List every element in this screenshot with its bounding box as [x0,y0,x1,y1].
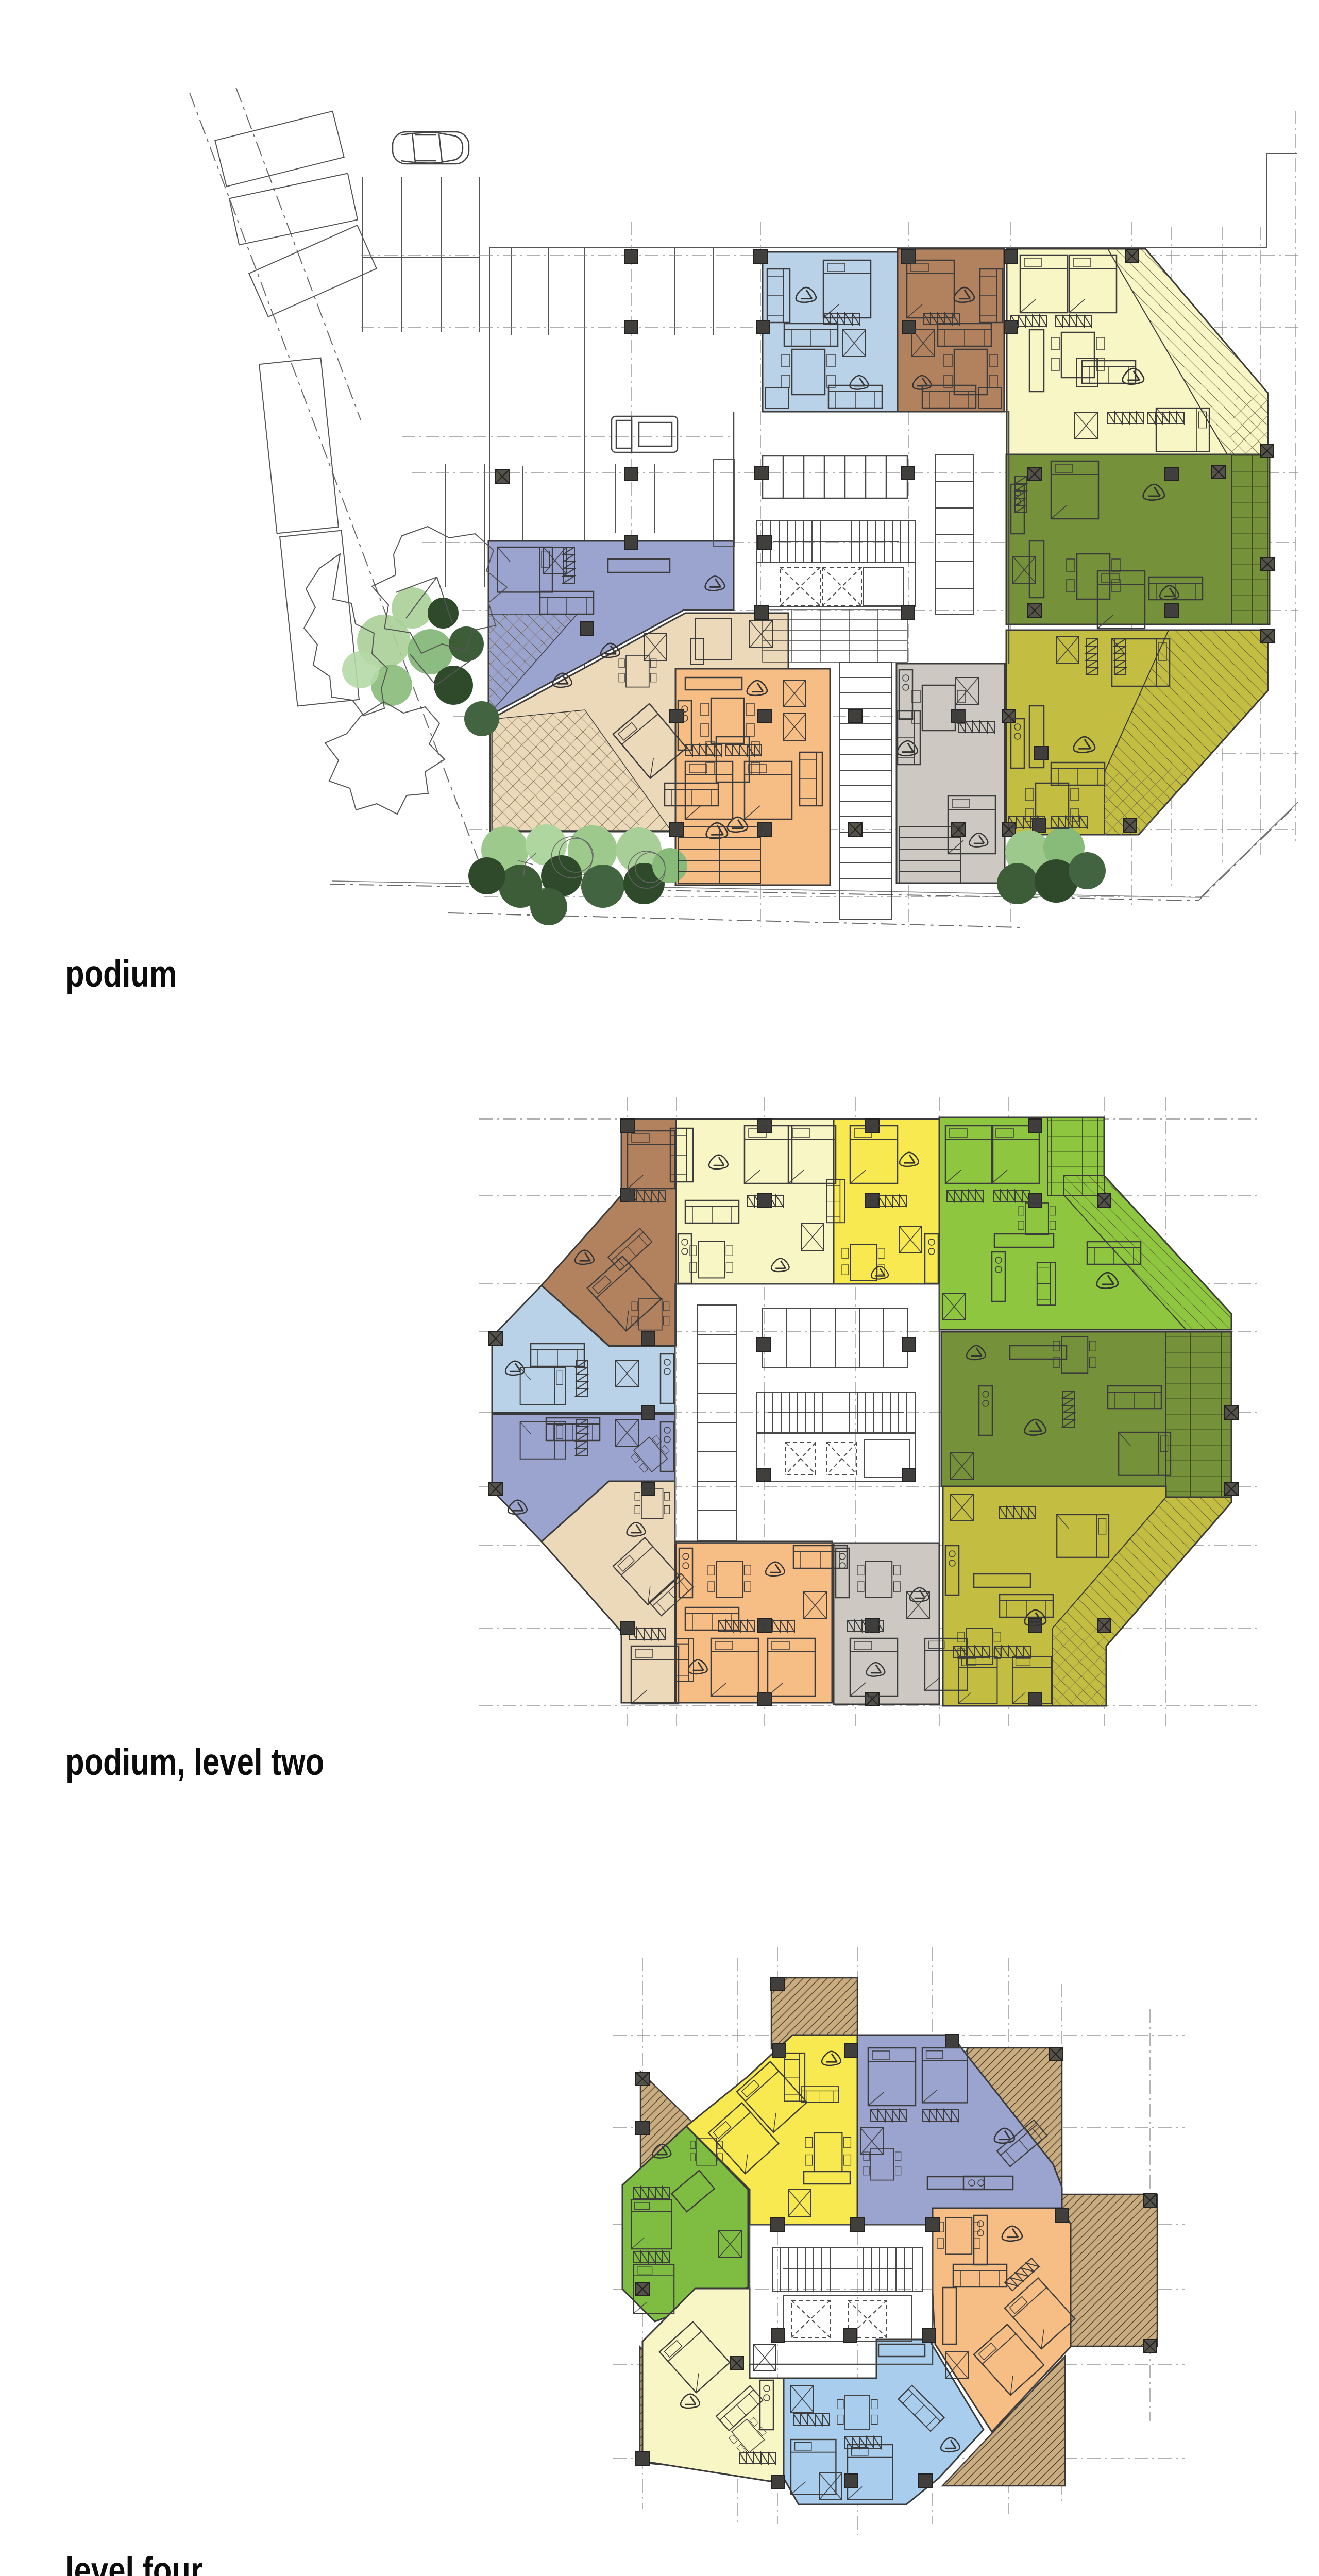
svg-text:podium: podium [65,953,177,995]
svg-text:level four: level four [65,2550,202,2576]
svg-text:podium, level two: podium, level two [65,1741,324,1783]
